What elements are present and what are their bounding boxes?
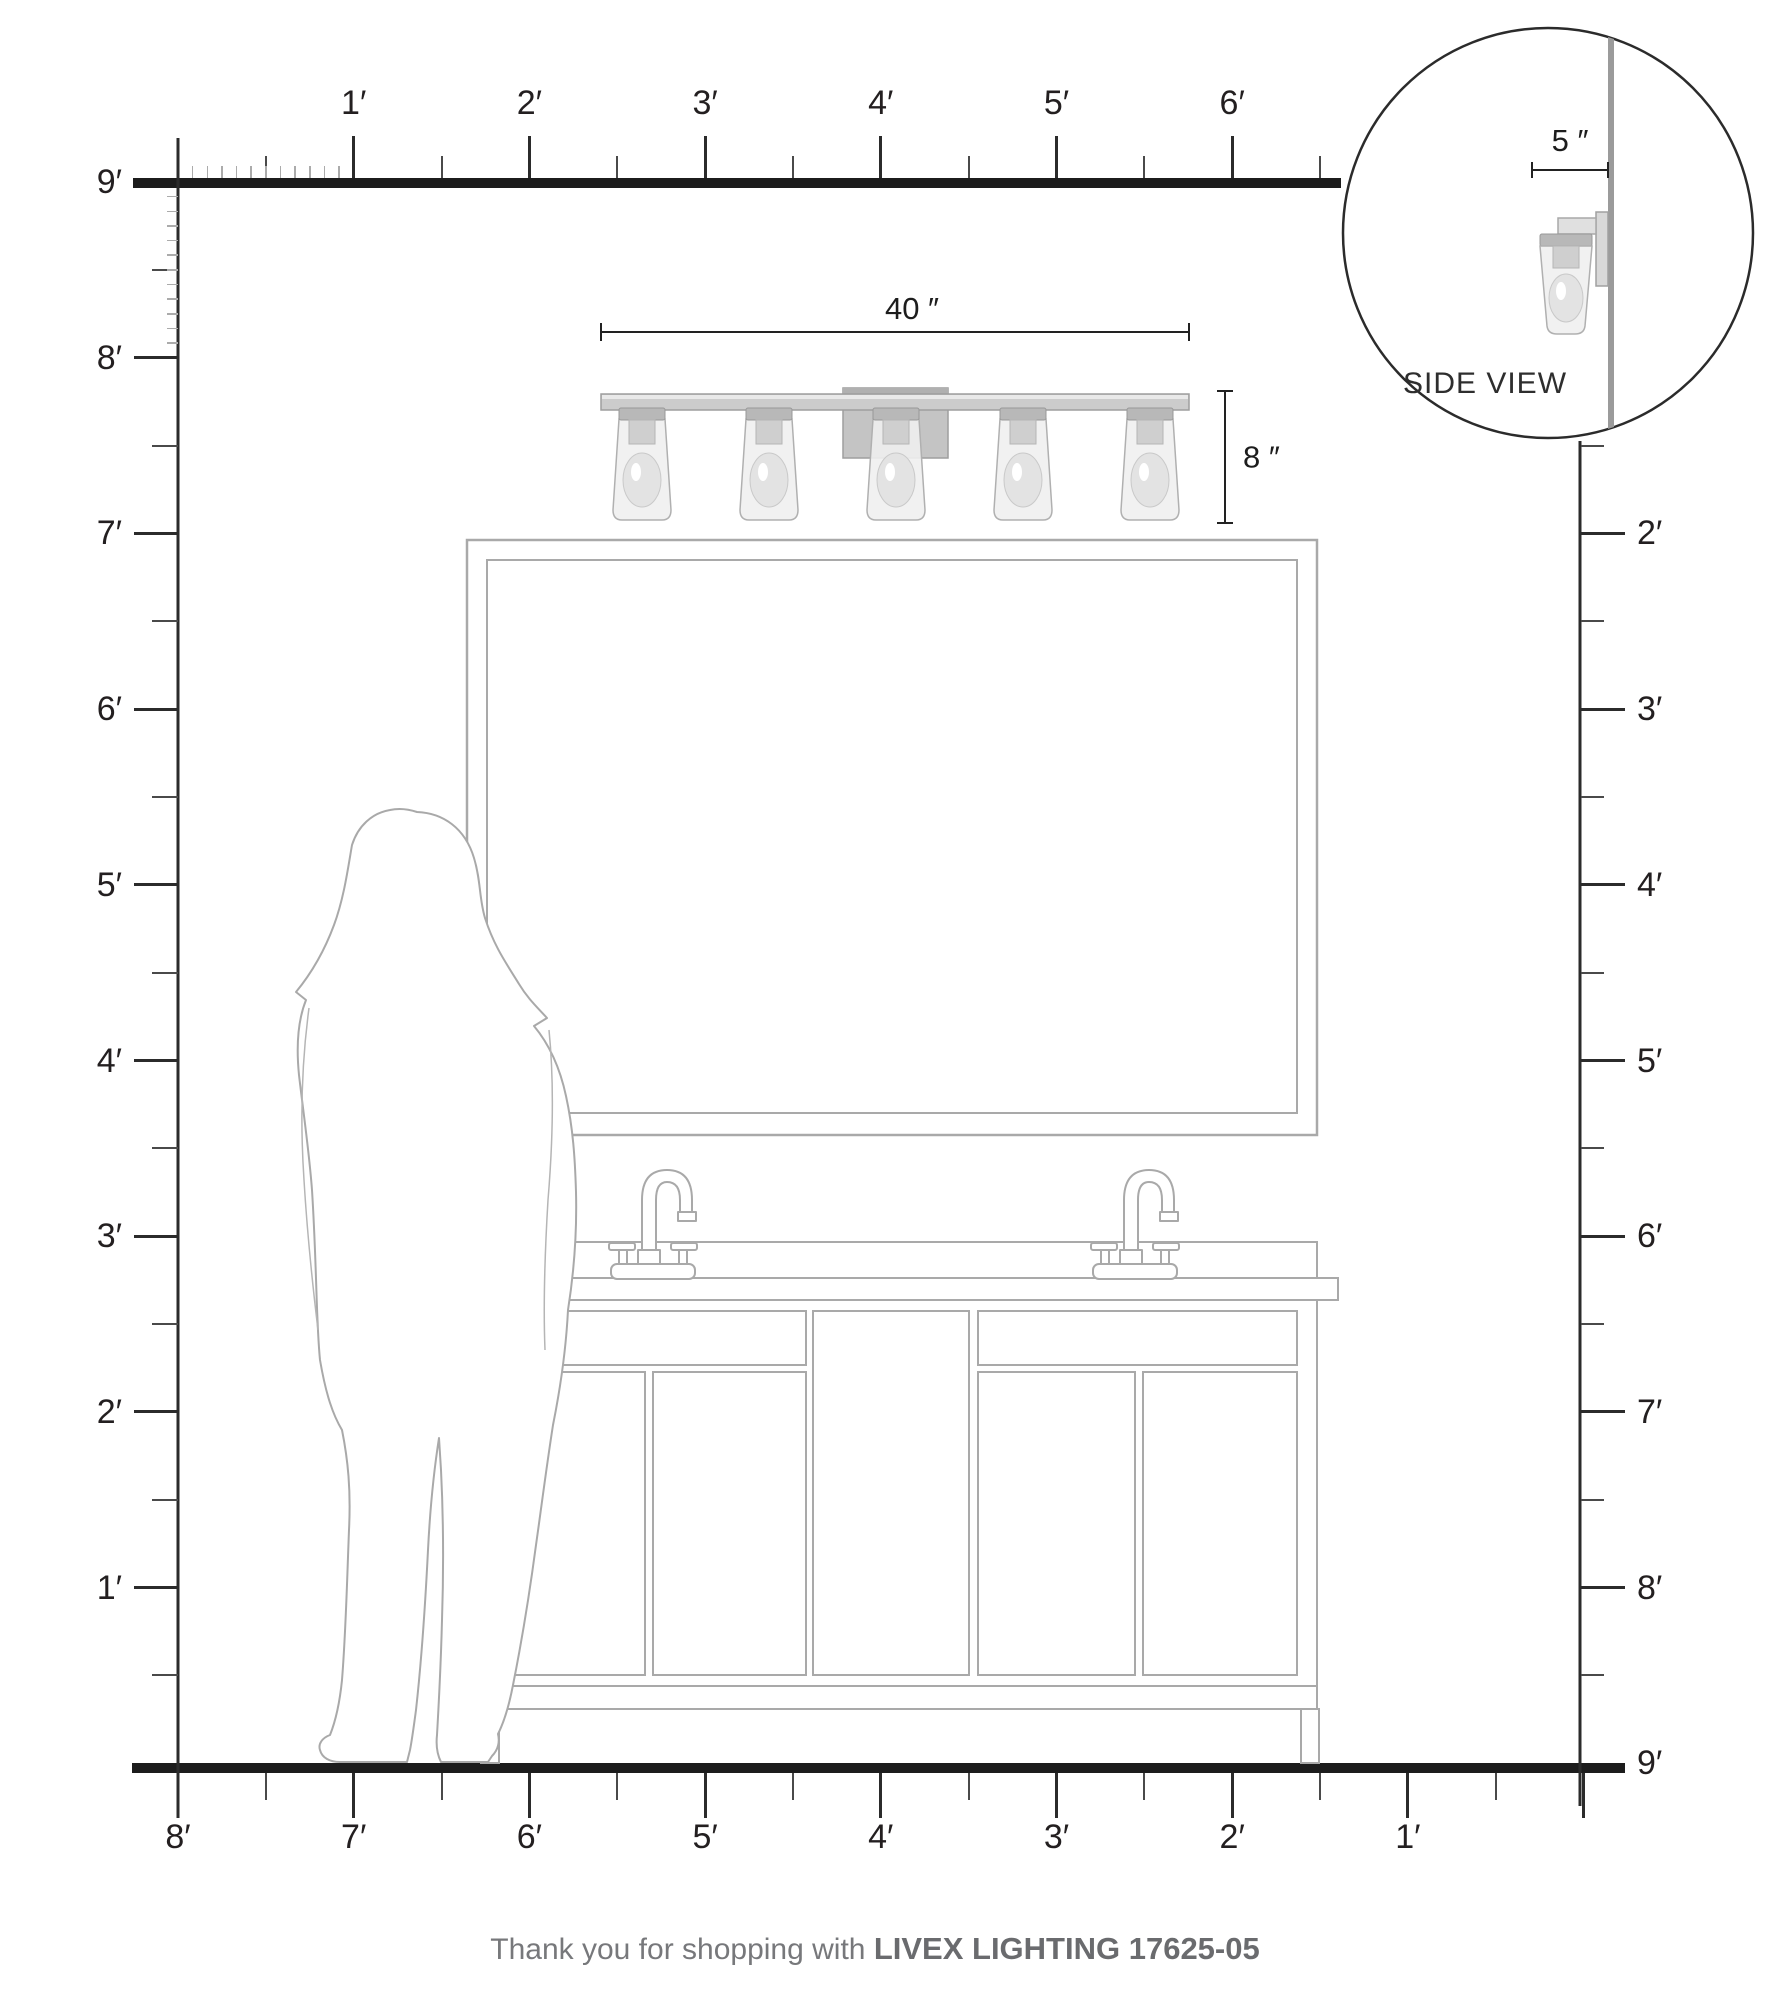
top-ruler-label: 5′	[1044, 86, 1069, 120]
top-ruler-label: 6′	[1220, 86, 1245, 120]
top-half-tick	[441, 156, 443, 178]
bottom-ruler-label: 7′	[341, 1820, 366, 1854]
faucet-left	[609, 1170, 697, 1279]
left-inch-tick	[167, 328, 178, 330]
left-ruler-label: 6′	[97, 692, 122, 726]
right-foot-tick	[1581, 883, 1625, 886]
height-dimension-label: 8 ″	[1243, 442, 1280, 473]
left-half-tick	[152, 1147, 178, 1149]
door-4	[1143, 1372, 1297, 1675]
left-inch-tick	[167, 196, 178, 198]
right-half-tick	[1581, 972, 1604, 974]
top-ruler-label: 3′	[692, 86, 717, 120]
left-foot-tick	[134, 532, 178, 535]
right-ruler-label: 9′	[1637, 1746, 1662, 1780]
bottom-ruler-label: 6′	[517, 1820, 542, 1854]
left-inch-tick	[167, 254, 178, 256]
bottom-foot-tick	[879, 1773, 882, 1818]
glass-shade-4	[994, 408, 1052, 520]
right-half-tick	[1581, 620, 1604, 622]
right-half-tick	[1581, 1147, 1604, 1149]
vanity-cabinet	[447, 1242, 1338, 1763]
top-inch-tick	[294, 166, 296, 178]
door-2	[653, 1372, 806, 1675]
right-half-tick	[1581, 796, 1604, 798]
glass-shade-3	[867, 408, 925, 520]
left-ruler-label: 3′	[97, 1219, 122, 1253]
top-half-tick	[792, 156, 794, 178]
bottom-foot-tick	[1582, 1773, 1585, 1818]
right-foot-tick	[1581, 1235, 1625, 1238]
ceiling-line	[133, 178, 1341, 188]
top-foot-tick	[1231, 136, 1234, 178]
height-dimension	[1217, 391, 1233, 523]
bottom-half-tick	[265, 1773, 267, 1800]
footer-prefix: Thank you for shopping with	[490, 1933, 874, 1966]
vanity-light-fixture	[601, 388, 1189, 520]
bottom-half-tick	[1143, 1773, 1145, 1800]
fixture-bar-highlight	[602, 395, 1188, 399]
top-ruler-label: 1′	[341, 86, 366, 120]
bottom-half-tick	[1495, 1773, 1497, 1800]
bottom-foot-tick	[1406, 1773, 1409, 1818]
glass-shade-1	[613, 408, 671, 520]
left-half-tick	[152, 796, 178, 798]
left-ruler-label: 7′	[97, 516, 122, 550]
top-inch-tick	[207, 166, 209, 178]
right-half-tick	[1581, 445, 1604, 447]
bottom-ruler-label: 8′	[165, 1820, 190, 1854]
wall-section-line	[1608, 28, 1614, 440]
bottom-foot-tick	[704, 1773, 707, 1818]
top-inch-tick	[250, 166, 252, 178]
left-half-tick	[152, 620, 178, 622]
right-half-tick	[1581, 1499, 1604, 1501]
drawer-front-right	[978, 1311, 1297, 1365]
top-foot-tick	[704, 136, 707, 178]
left-ruler-label: 5′	[97, 868, 122, 902]
bottom-ruler-label: 2′	[1220, 1820, 1245, 1854]
side-view-label: SIDE VIEW	[1403, 367, 1567, 401]
bottom-half-tick	[792, 1773, 794, 1800]
top-half-tick	[1319, 156, 1321, 178]
vanity-light-dimension-diagram: 1′2′3′4′5′6′9′8′7′6′5′4′3′2′1′2′3′4′5′6′…	[0, 0, 1777, 2000]
footer-brand: LIVEX LIGHTING 17625-05	[874, 1931, 1260, 1966]
left-half-tick	[152, 1323, 178, 1325]
top-half-tick	[616, 156, 618, 178]
backsplash	[467, 1242, 1317, 1278]
right-half-tick	[1581, 1674, 1604, 1676]
left-inch-tick	[167, 240, 178, 242]
right-ruler-label: 7′	[1637, 1395, 1662, 1429]
top-foot-tick	[352, 136, 355, 178]
top-ruler-label: 2′	[517, 86, 542, 120]
left-inch-tick	[167, 342, 178, 344]
right-foot-tick	[1581, 1410, 1625, 1413]
left-ruler-label: 9′	[97, 165, 122, 199]
top-foot-tick	[528, 136, 531, 178]
top-inch-tick	[265, 166, 267, 178]
bottom-foot-tick	[1231, 1773, 1234, 1818]
left-foot-tick	[134, 1410, 178, 1413]
left-inch-tick	[167, 225, 178, 227]
top-foot-tick	[879, 136, 882, 178]
top-foot-tick	[1055, 136, 1058, 178]
cabinet-leg-right	[1301, 1709, 1319, 1763]
right-foot-tick	[1581, 1586, 1625, 1589]
left-foot-tick	[134, 356, 178, 359]
bottom-ruler-label: 5′	[692, 1820, 717, 1854]
right-foot-tick	[1581, 532, 1625, 535]
right-ruler-label: 4′	[1637, 868, 1662, 902]
mirror	[467, 540, 1317, 1135]
right-ruler-label: 3′	[1637, 692, 1662, 726]
faucet-right	[1091, 1170, 1179, 1279]
left-ruler-label: 8′	[97, 341, 122, 375]
top-ruler-label: 4′	[868, 86, 893, 120]
right-ruler-label: 6′	[1637, 1219, 1662, 1253]
top-inch-tick	[192, 166, 194, 178]
right-ruler-label: 8′	[1637, 1571, 1662, 1605]
door-center	[813, 1311, 969, 1675]
top-inch-tick	[280, 166, 282, 178]
right-ruler-line	[1579, 441, 1582, 1806]
bottom-ruler-label: 4′	[868, 1820, 893, 1854]
right-half-tick	[1581, 1323, 1604, 1325]
right-foot-tick	[1581, 708, 1625, 711]
left-foot-tick	[134, 1235, 178, 1238]
left-foot-tick	[134, 1586, 178, 1589]
left-foot-tick	[134, 1059, 178, 1062]
bottom-foot-tick	[528, 1773, 531, 1818]
left-inch-tick	[167, 211, 178, 213]
bottom-half-tick	[441, 1773, 443, 1800]
glass-shade-2	[740, 408, 798, 520]
top-inch-tick	[324, 166, 326, 178]
glass-shade-5	[1121, 408, 1179, 520]
bottom-half-tick	[968, 1773, 970, 1800]
footer-text: Thank you for shopping with LIVEX LIGHTI…	[490, 1931, 1259, 1967]
bottom-half-tick	[1319, 1773, 1321, 1800]
bottom-half-tick	[616, 1773, 618, 1800]
top-inch-tick	[236, 166, 238, 178]
top-inch-tick	[221, 166, 223, 178]
bottom-foot-tick	[1055, 1773, 1058, 1818]
top-half-tick	[1143, 156, 1145, 178]
top-inch-tick	[338, 166, 340, 178]
left-half-tick	[152, 1499, 178, 1501]
bottom-ruler-label: 1′	[1395, 1820, 1420, 1854]
left-ruler-label: 1′	[97, 1571, 122, 1605]
left-foot-tick	[134, 883, 178, 886]
bottom-foot-tick	[352, 1773, 355, 1818]
bottom-ruler-label: 3′	[1044, 1820, 1069, 1854]
left-inch-tick	[167, 269, 178, 271]
right-foot-tick	[1581, 1059, 1625, 1062]
right-ruler-label: 2′	[1637, 516, 1662, 550]
top-half-tick	[968, 156, 970, 178]
left-ruler-label: 2′	[97, 1395, 122, 1429]
glass-shades	[613, 408, 1179, 520]
left-ruler-label: 4′	[97, 1044, 122, 1078]
top-inch-tick	[309, 166, 311, 178]
left-half-tick	[152, 445, 178, 447]
left-inch-tick	[167, 313, 178, 315]
width-dimension-label: 40 ″	[885, 293, 939, 324]
left-half-tick	[152, 972, 178, 974]
right-ruler-label: 5′	[1637, 1044, 1662, 1078]
countertop	[447, 1278, 1338, 1300]
left-half-tick	[152, 1674, 178, 1676]
left-inch-tick	[167, 284, 178, 286]
door-3	[978, 1372, 1135, 1675]
depth-dimension-label: 5 ″	[1552, 125, 1589, 156]
floor-line	[132, 1763, 1625, 1773]
left-foot-tick	[134, 708, 178, 711]
left-inch-tick	[167, 298, 178, 300]
left-ruler-line	[177, 138, 180, 1818]
